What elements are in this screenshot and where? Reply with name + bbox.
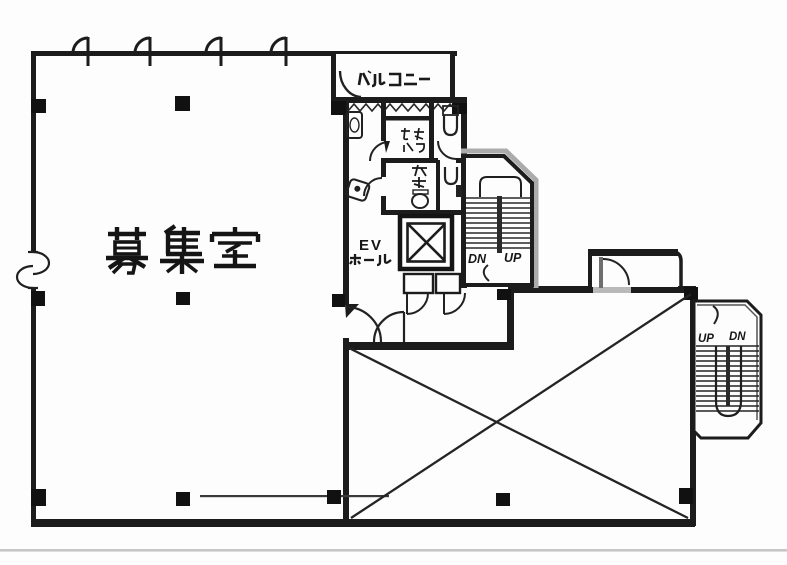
svg-text:DN: DN xyxy=(729,331,746,343)
svg-text:EV: EV xyxy=(359,237,383,254)
svg-text:DN: DN xyxy=(468,252,487,266)
svg-text:UP: UP xyxy=(698,333,714,345)
svg-text:UP: UP xyxy=(504,251,522,265)
